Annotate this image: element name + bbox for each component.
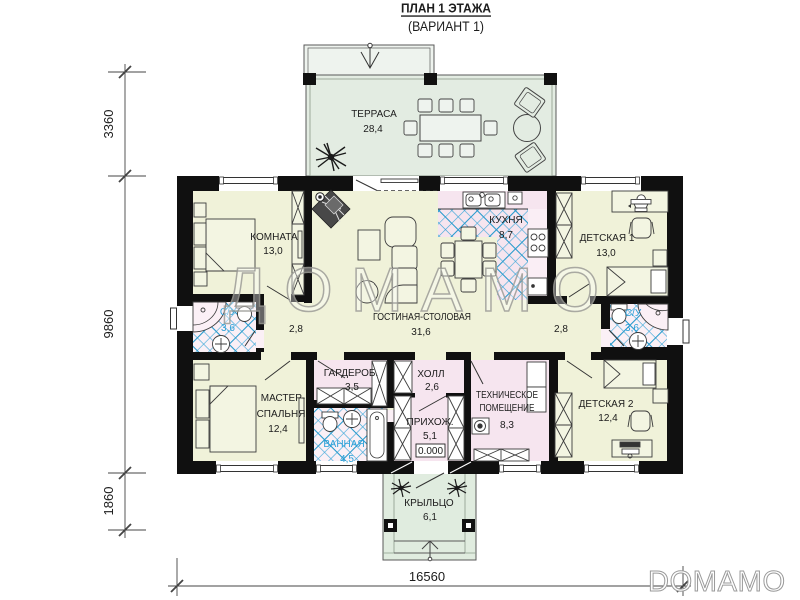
svg-text:16560: 16560 [409,569,445,584]
svg-text:ВАННАЯ: ВАННАЯ [323,439,364,450]
svg-text:12,4: 12,4 [268,424,288,435]
svg-text:4,5: 4,5 [340,454,354,465]
svg-text:КОМНАТА: КОМНАТА [250,232,298,243]
svg-text:КРЫЛЬЦО: КРЫЛЬЦО [404,498,454,509]
svg-text:3,6: 3,6 [625,323,639,334]
svg-text:28,4: 28,4 [363,124,383,135]
svg-text:1860: 1860 [101,487,116,516]
svg-text:0.000: 0.000 [418,446,443,457]
svg-text:2,6: 2,6 [425,382,439,393]
svg-text:ХОЛЛ: ХОЛЛ [417,369,444,380]
svg-text:ПЛАН 1 ЭТАЖА: ПЛАН 1 ЭТАЖА [401,1,492,16]
svg-text:(ВАРИАНТ 1): (ВАРИАНТ 1) [408,19,484,34]
svg-text:12,4: 12,4 [598,413,618,424]
svg-text:ТЕРРАСА: ТЕРРАСА [351,109,397,120]
svg-text:5,1: 5,1 [423,431,437,442]
svg-text:8,3: 8,3 [500,420,514,431]
svg-text:КУХНЯ: КУХНЯ [489,215,522,226]
svg-text:31,6: 31,6 [411,327,431,338]
svg-text:ПОМЕЩЕНИЕ: ПОМЕЩЕНИЕ [480,403,535,414]
svg-text:3,5: 3,5 [345,382,359,393]
svg-text:ТЕХНИЧЕСКОЕ: ТЕХНИЧЕСКОЕ [476,390,538,401]
svg-text:2,8: 2,8 [289,324,303,335]
svg-text:2,8: 2,8 [554,324,568,335]
svg-text:МАСТЕР-: МАСТЕР- [261,393,305,404]
svg-text:6,1: 6,1 [423,512,437,523]
svg-text:ГАРДЕРОБ.: ГАРДЕРОБ. [324,368,378,379]
svg-text:3360: 3360 [101,110,116,139]
svg-text:8,7: 8,7 [499,230,513,241]
svg-text:ДЕТСКАЯ 1: ДЕТСКАЯ 1 [580,233,635,244]
svg-text:DOMAMO: DOMAMO [648,566,786,598]
svg-text:ДЕТСКАЯ 2: ДЕТСКАЯ 2 [579,399,634,410]
svg-text:ПРИХОЖ.: ПРИХОЖ. [407,417,454,428]
svg-text:С/У: С/У [625,308,642,319]
svg-text:СПАЛЬНЯ: СПАЛЬНЯ [257,409,306,420]
svg-text:9860: 9860 [101,310,116,339]
